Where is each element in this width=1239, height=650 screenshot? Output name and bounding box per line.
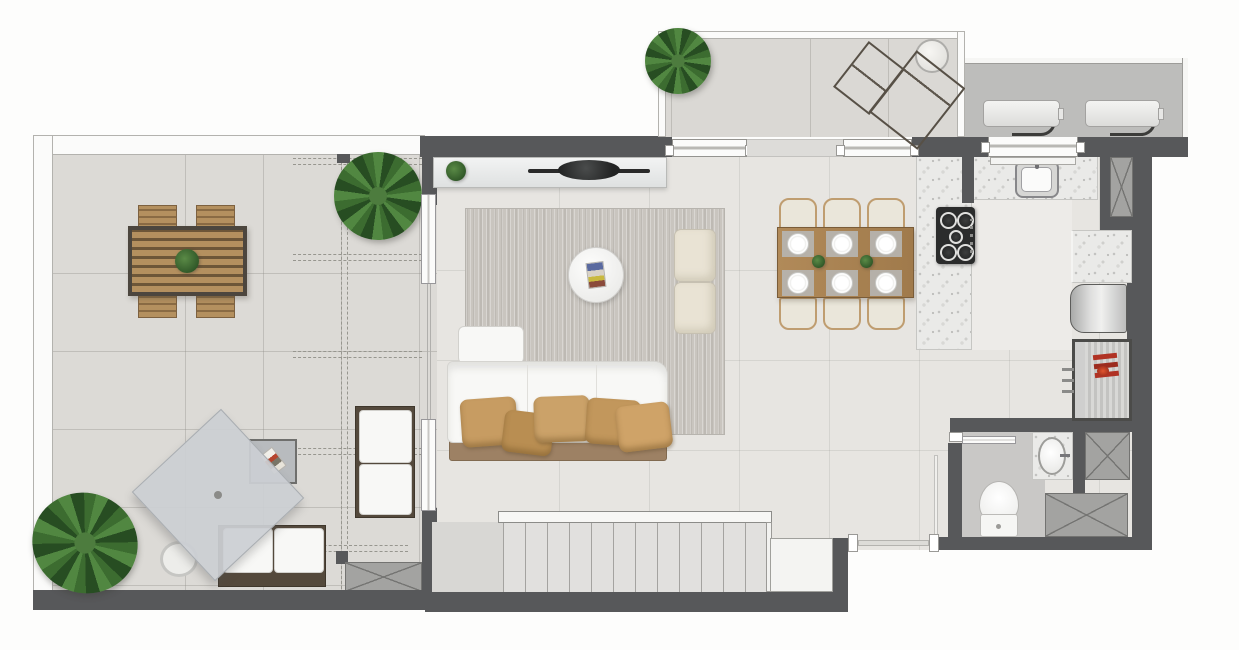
burner-center bbox=[949, 230, 963, 244]
stair-handrail-band bbox=[498, 511, 772, 523]
bench-cushion bbox=[274, 528, 324, 573]
sink-basin bbox=[1021, 167, 1052, 192]
pergola-beam-3 bbox=[293, 351, 422, 358]
tv bbox=[558, 160, 620, 180]
understair-floor bbox=[432, 522, 503, 592]
wall-bath-divider bbox=[1073, 418, 1085, 493]
wardrobe-closet bbox=[1085, 342, 1129, 418]
dining-chair bbox=[779, 297, 817, 330]
sofa-pillow bbox=[533, 395, 591, 443]
pergola-beam-2 bbox=[293, 254, 422, 261]
ottoman bbox=[674, 282, 716, 334]
bench-cushion bbox=[359, 464, 412, 515]
service-area-edge-right bbox=[1182, 58, 1188, 137]
toilet-flush-button bbox=[996, 524, 1001, 529]
stair-landing bbox=[770, 538, 833, 592]
ac-condenser-2 bbox=[1085, 100, 1160, 127]
entry-door-jamb-left bbox=[848, 534, 858, 552]
cooktop bbox=[936, 207, 975, 264]
bathroom-sliding-door bbox=[962, 436, 1016, 444]
dining-centerpiece bbox=[812, 255, 825, 268]
kitchen-counter-right bbox=[1071, 230, 1132, 283]
kitchen-window bbox=[988, 135, 1078, 157]
coffee-table-magazine bbox=[585, 261, 606, 289]
refrigerator bbox=[1070, 284, 1127, 333]
wall-right bbox=[1132, 157, 1152, 549]
wall-bottom-interior bbox=[425, 592, 848, 612]
living-window-left bbox=[672, 139, 747, 157]
sofa-pillow bbox=[614, 401, 673, 453]
living-opening-glass bbox=[747, 139, 843, 157]
exterior-mask bbox=[848, 550, 1160, 650]
terrace-large-plant bbox=[334, 152, 422, 240]
plate bbox=[831, 233, 853, 255]
kitchen-floor bbox=[972, 200, 1072, 350]
terrace-sliding-door-upper bbox=[421, 194, 436, 284]
balcony-parapet-top bbox=[658, 31, 965, 39]
dining-chair bbox=[823, 297, 861, 330]
kitchen-wall-stub bbox=[962, 155, 974, 203]
balcony-plant bbox=[645, 28, 711, 94]
terrace-wall-stub-top bbox=[337, 154, 350, 163]
service-area-edge-top bbox=[965, 58, 1188, 64]
ac-condenser-1 bbox=[983, 100, 1060, 127]
plate bbox=[875, 272, 897, 294]
bathroom-wall-bottom bbox=[938, 537, 1152, 550]
hanging-clothes-red bbox=[1093, 353, 1117, 360]
bench-cushion bbox=[359, 410, 412, 463]
plate bbox=[787, 233, 809, 255]
hanging-clothes-accent bbox=[1097, 366, 1109, 376]
wall-top-right bbox=[1078, 136, 1188, 157]
plate bbox=[787, 272, 809, 294]
hall-wall-edge bbox=[934, 455, 938, 537]
vanity-faucet bbox=[1060, 454, 1070, 457]
burner bbox=[940, 244, 957, 261]
stair-treads bbox=[503, 522, 768, 592]
ac-condenser-tab bbox=[1058, 108, 1064, 120]
ottoman bbox=[674, 229, 716, 282]
kitchen-window-sill bbox=[990, 157, 1076, 165]
wardrobe-handles bbox=[1062, 367, 1074, 393]
wall-top-living bbox=[420, 136, 672, 157]
parasol-pole bbox=[214, 491, 222, 499]
dining-centerpiece bbox=[860, 255, 873, 268]
terrace-sliding-door-lower bbox=[421, 419, 436, 511]
kitchen-duct-shaft bbox=[1110, 157, 1133, 217]
bathroom-duct-small bbox=[1085, 432, 1130, 480]
kitchen-sink bbox=[1015, 160, 1059, 198]
apartment-floor-plan bbox=[0, 0, 1239, 650]
wall-entry-step bbox=[833, 538, 848, 612]
bathroom-wall-left bbox=[948, 443, 962, 538]
bathroom-door-jamb bbox=[949, 432, 963, 442]
sideboard-plant bbox=[446, 161, 466, 181]
plate bbox=[875, 233, 897, 255]
wardrobe-frame bbox=[1072, 339, 1132, 421]
bathroom-duct-wide bbox=[1045, 493, 1128, 537]
entry-door-jamb-right bbox=[929, 534, 939, 552]
sofa-chaise-back bbox=[458, 326, 524, 364]
cooktop-knobs bbox=[970, 219, 973, 253]
daybed-bench-right bbox=[355, 406, 415, 518]
entry-threshold bbox=[858, 540, 929, 546]
terrace-service-shaft bbox=[345, 562, 422, 592]
terrace-parapet-top bbox=[33, 135, 425, 155]
coffee-table bbox=[568, 247, 624, 303]
plate bbox=[831, 272, 853, 294]
ac-condenser-tab bbox=[1158, 108, 1164, 120]
living-window-right bbox=[843, 139, 912, 157]
burner bbox=[940, 212, 957, 229]
dining-chair bbox=[867, 297, 905, 330]
wardrobe-side-panel bbox=[1075, 342, 1085, 418]
table-centerpiece-plant bbox=[175, 249, 199, 273]
wall-fridge-right bbox=[1127, 283, 1152, 339]
